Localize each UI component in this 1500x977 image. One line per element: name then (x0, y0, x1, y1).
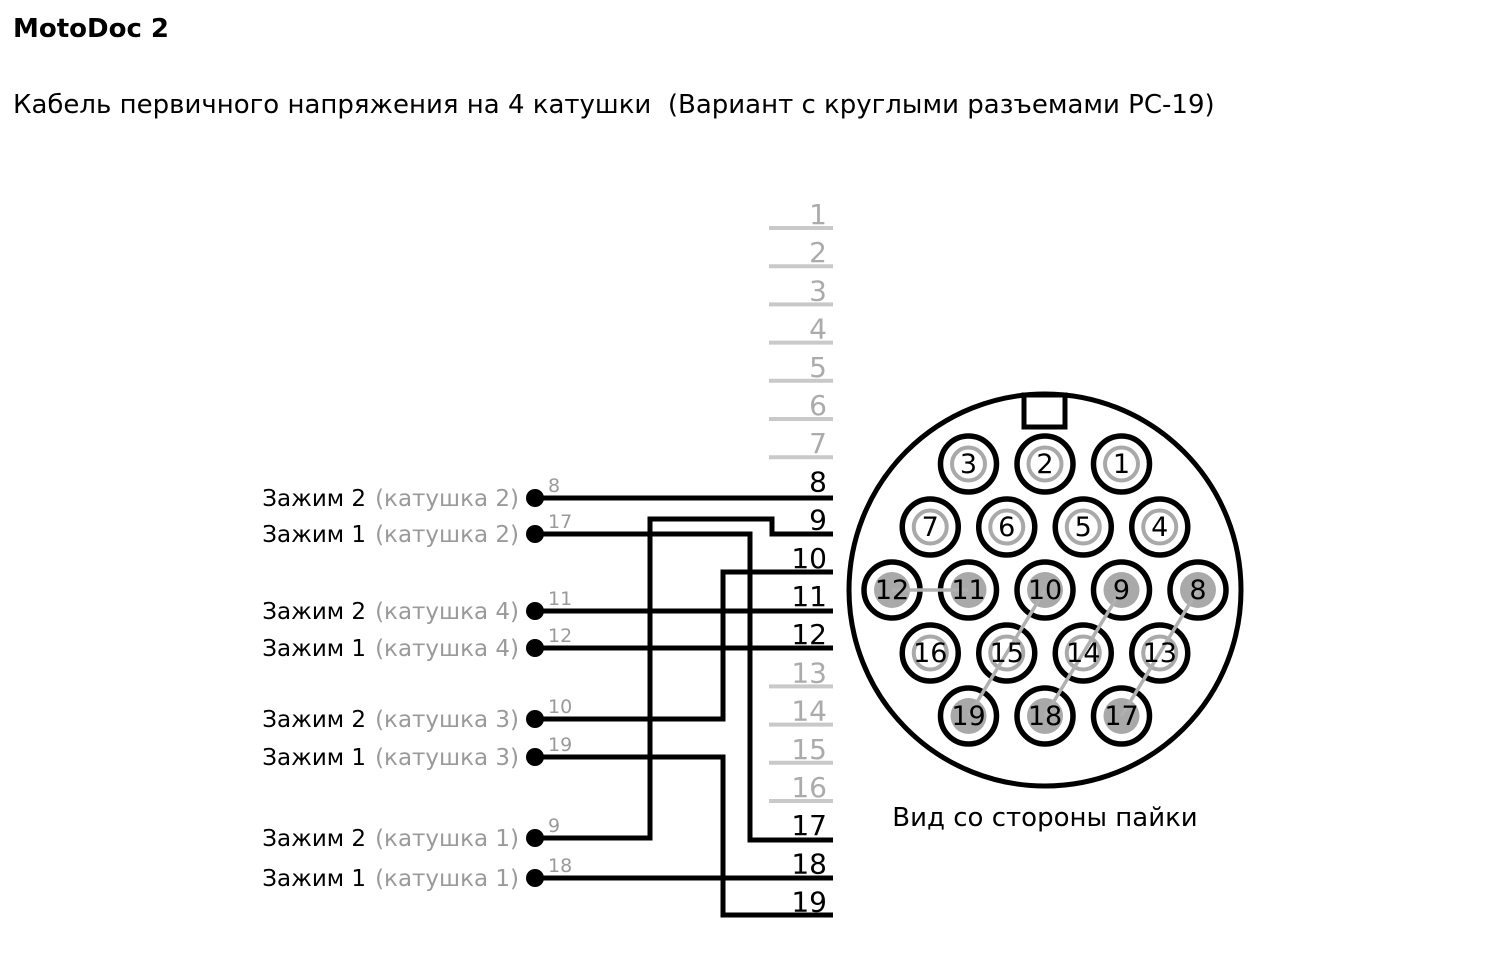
terminal-4-number: 4 (809, 313, 827, 346)
terminal-6-number: 6 (809, 389, 827, 422)
wire-number: 18 (548, 855, 572, 877)
terminal-9-number: 9 (809, 504, 827, 537)
clamp-label: Зажим 1(катушка 3) (262, 745, 519, 771)
pin-1-number: 1 (1113, 449, 1130, 480)
wire-endpoint-dot (526, 602, 544, 620)
pin-8-number: 8 (1189, 575, 1206, 606)
terminal-14-number: 14 (791, 695, 827, 728)
terminal-10-number: 10 (791, 542, 827, 575)
clamp-label: Зажим 2(катушка 2) (262, 486, 519, 512)
wire-number: 12 (548, 625, 572, 647)
pin-14-number: 14 (1066, 638, 1100, 669)
terminal-2-number: 2 (809, 236, 827, 269)
clamp-label: Зажим 1(катушка 4) (262, 636, 519, 662)
wire-endpoint-dot (526, 748, 544, 766)
pin-5-number: 5 (1075, 512, 1092, 543)
wire-endpoint-dot (526, 525, 544, 543)
wire-endpoint-dot (526, 489, 544, 507)
wire-endpoint-dot (526, 639, 544, 657)
pin-16-number: 16 (913, 638, 947, 669)
pin-17-number: 17 (1104, 701, 1138, 732)
wiring-diagram-page: MotoDoc 2 Кабель первичного напряжения н… (0, 0, 1500, 977)
pin-7-number: 7 (922, 512, 939, 543)
pin-11-number: 11 (951, 575, 985, 606)
terminal-1-number: 1 (809, 198, 827, 231)
wire-number: 17 (548, 511, 572, 533)
terminal-18-number: 18 (791, 847, 827, 880)
wire-endpoint-dot (526, 710, 544, 728)
wire-number: 19 (548, 734, 572, 756)
wire-number: 10 (548, 696, 572, 718)
terminal-17-number: 17 (791, 809, 827, 842)
wire-number: 11 (548, 588, 572, 610)
terminal-16-number: 16 (791, 771, 827, 804)
clamp-label: Зажим 1(катушка 2) (262, 522, 519, 548)
wire-number: 9 (548, 815, 560, 837)
terminal-5-number: 5 (809, 351, 827, 384)
connector-caption: Вид со стороны пайки (892, 803, 1197, 833)
clamp-label: Зажим 2(катушка 3) (262, 707, 519, 733)
clamp-label: Зажим 2(катушка 4) (262, 599, 519, 625)
pin-19-number: 19 (951, 701, 985, 732)
clamp-label: Зажим 1(катушка 1) (262, 866, 519, 892)
pin-10-number: 10 (1028, 575, 1062, 606)
pin-4-number: 4 (1151, 512, 1168, 543)
terminal-11-number: 11 (791, 580, 827, 613)
terminal-12-number: 12 (791, 618, 827, 651)
pin-2-number: 2 (1036, 449, 1053, 480)
terminal-3-number: 3 (809, 274, 827, 307)
connector-key-notch (1024, 395, 1065, 427)
wire-endpoint-dot (526, 829, 544, 847)
pin-15-number: 15 (990, 638, 1024, 669)
pin-9-number: 9 (1113, 575, 1130, 606)
terminal-19-number: 19 (791, 886, 827, 919)
clamp-label: Зажим 2(катушка 1) (262, 826, 519, 852)
pin-12-number: 12 (875, 575, 909, 606)
pin-18-number: 18 (1028, 701, 1062, 732)
pin-13-number: 13 (1143, 638, 1177, 669)
pin-3-number: 3 (960, 449, 977, 480)
wiring-diagram: 8Зажим 2(катушка 2)17Зажим 1(катушка 2)1… (0, 0, 1500, 977)
wire-9 (535, 519, 833, 838)
terminal-8-number: 8 (809, 465, 827, 498)
terminal-7-number: 7 (809, 427, 827, 460)
wire-number: 8 (548, 475, 560, 497)
terminal-13-number: 13 (791, 656, 827, 689)
pin-6-number: 6 (998, 512, 1015, 543)
terminal-15-number: 15 (791, 733, 827, 766)
wire-endpoint-dot (526, 869, 544, 887)
